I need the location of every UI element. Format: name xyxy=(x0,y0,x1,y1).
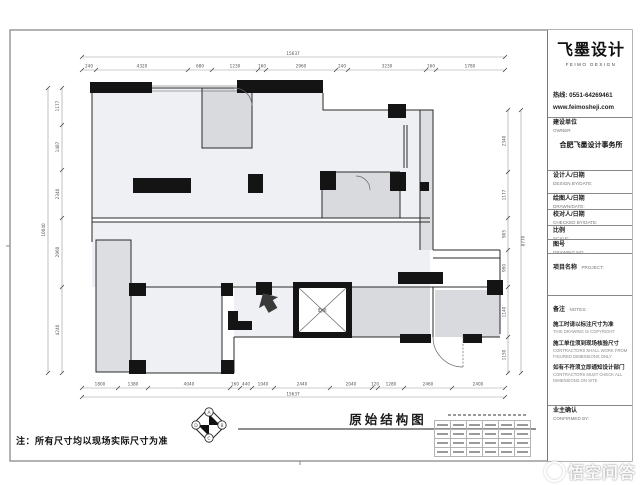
contact-info: 热线: 0551-64269461 www.feimosheji.com xyxy=(548,88,632,114)
svg-text:4320: 4320 xyxy=(137,64,148,69)
note-item: 施工单位须到现场核验尺寸 CONTRACTORS SHALL WORK FROM… xyxy=(553,341,629,359)
note-item: 如有不符须立即通知设计部门 CONTRACTORS MUST CHECK ALL… xyxy=(553,365,629,383)
svg-text:2340: 2340 xyxy=(55,188,60,199)
svg-text:1487: 1487 xyxy=(55,141,60,152)
svg-text:15637: 15637 xyxy=(286,392,300,397)
svg-text:1230: 1230 xyxy=(230,64,241,69)
svg-text:905: 905 xyxy=(502,230,507,238)
svg-text:2460: 2460 xyxy=(423,382,434,387)
elevator: 电梯 xyxy=(293,282,352,338)
svg-text:1177: 1177 xyxy=(502,189,507,200)
svg-text:B: B xyxy=(220,423,223,429)
svg-text:240: 240 xyxy=(338,64,346,69)
svg-text:1280: 1280 xyxy=(386,382,397,387)
title-block: 飞墨设计 FEIMO DESIGN 热线: 0551-64269461 www.… xyxy=(547,30,632,461)
svg-text:680: 680 xyxy=(196,64,204,69)
svg-text:1140: 1140 xyxy=(502,306,507,317)
svg-text:440: 440 xyxy=(242,382,250,387)
svg-text:160: 160 xyxy=(258,64,266,69)
svg-text:160: 160 xyxy=(231,382,239,387)
svg-text:D: D xyxy=(194,423,198,429)
owner-label-en: OWNER xyxy=(553,128,629,134)
svg-text:1040: 1040 xyxy=(258,382,269,387)
svg-text:8770: 8770 xyxy=(521,235,526,246)
field-designer: 设计人/日期 DESIGN BY/DATE: xyxy=(548,170,632,193)
svg-text:2400: 2400 xyxy=(473,382,484,387)
field-drawn: 绘图人/日期 DRAWN/DATE: xyxy=(548,193,632,209)
watermark: 悟空问答 xyxy=(544,459,636,483)
website: www.feimosheji.com xyxy=(553,102,629,114)
company-name-en: FEIMO DESIGN xyxy=(553,62,629,67)
svg-text:1150: 1150 xyxy=(502,349,507,360)
svg-text:160: 160 xyxy=(427,64,435,69)
svg-text:3230: 3230 xyxy=(382,64,393,69)
svg-text:10040: 10040 xyxy=(41,223,46,237)
owner-value: 合肥飞墨设计事务所 xyxy=(553,140,629,150)
company-name: 飞墨设计 xyxy=(553,42,629,60)
svg-text:4240: 4240 xyxy=(55,324,60,335)
watermark-text: 悟空问答 xyxy=(568,459,636,483)
owner-label: 建设单位 xyxy=(553,120,629,128)
drawing-sheet: 电梯 xyxy=(0,0,640,485)
svg-text:4040: 4040 xyxy=(184,382,195,387)
field-scale: 比例 SCALE: xyxy=(548,225,632,239)
svg-text:15637: 15637 xyxy=(286,51,300,56)
compass-icon: A B C D xyxy=(192,408,226,442)
svg-text:120: 120 xyxy=(371,382,379,387)
site-note: 注：所有尺寸均以现场实际尺寸为准 xyxy=(16,434,168,447)
legend-caption xyxy=(448,414,526,416)
field-project: 项目名称 PROJECT: xyxy=(548,253,632,295)
svg-text:C: C xyxy=(207,436,210,442)
svg-text:240: 240 xyxy=(85,64,93,69)
svg-text:1800: 1800 xyxy=(95,382,106,387)
svg-text:2440: 2440 xyxy=(297,382,308,387)
elevator-label: 电梯 xyxy=(318,307,327,314)
field-checked: 校对人/日期 CHECKED BY/DATE: xyxy=(548,209,632,225)
svg-text:2960: 2960 xyxy=(296,64,307,69)
owner-section: 建设单位 OWNER 合肥飞墨设计事务所 xyxy=(548,117,632,170)
company-logo: 飞墨设计 FEIMO DESIGN xyxy=(548,40,632,67)
svg-text:2040: 2040 xyxy=(346,382,357,387)
svg-text:1780: 1780 xyxy=(465,64,476,69)
watermark-logo-icon xyxy=(544,461,565,482)
svg-text:2960: 2960 xyxy=(55,246,60,257)
notes-section: 备注 NOTES: 施工时请以标注尺寸为准 THIS DRAWING IS CO… xyxy=(548,295,632,405)
hotline: 热线: 0551-64269461 xyxy=(553,90,629,102)
confirm-section: 业主确认 CONFIRMED BY: xyxy=(548,405,632,461)
note-item: 施工时请以标注尺寸为准 THIS DRAWING IS COPYRIGHT xyxy=(553,322,629,335)
svg-text:1177: 1177 xyxy=(55,100,60,111)
svg-text:1380: 1380 xyxy=(128,382,139,387)
svg-text:2340: 2340 xyxy=(502,135,507,146)
svg-text:960: 960 xyxy=(502,264,507,272)
legend-table xyxy=(434,420,531,457)
field-drawing-no: 图号 DRAWING NO: xyxy=(548,239,632,253)
